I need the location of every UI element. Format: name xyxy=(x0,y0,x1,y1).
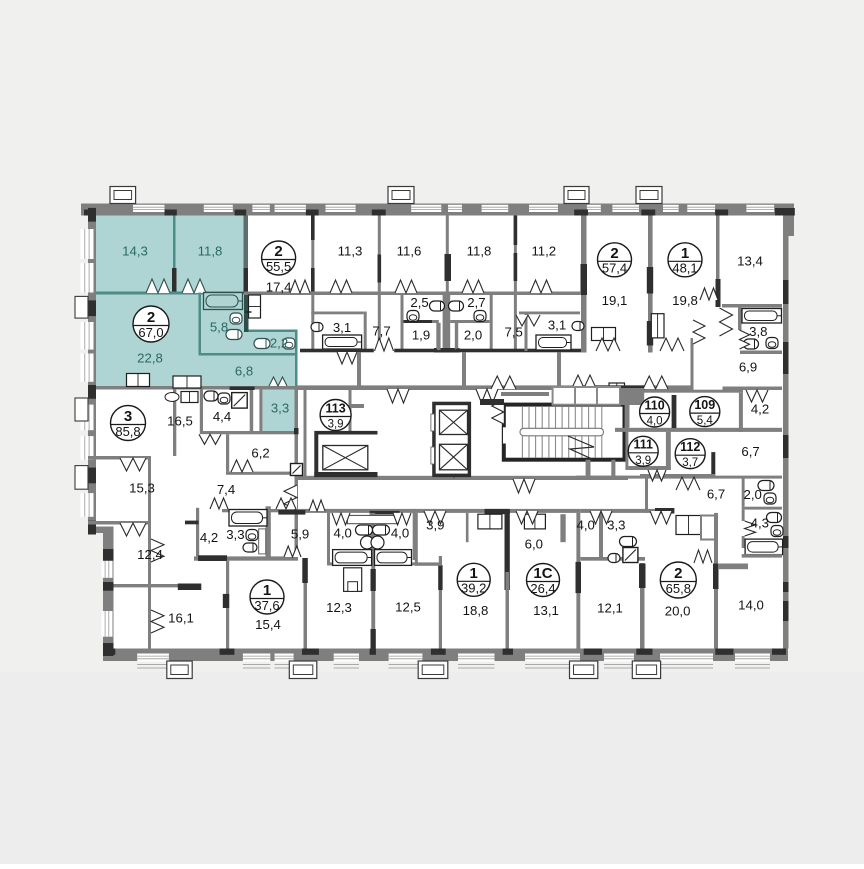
svg-text:11,6: 11,6 xyxy=(397,243,422,258)
svg-text:39,2: 39,2 xyxy=(461,581,486,596)
svg-text:37,6: 37,6 xyxy=(254,598,279,613)
svg-text:3,8: 3,8 xyxy=(749,324,767,339)
svg-text:18,8: 18,8 xyxy=(463,603,489,618)
svg-text:7,7: 7,7 xyxy=(372,324,390,339)
svg-text:3,3: 3,3 xyxy=(607,518,625,533)
svg-text:85,8: 85,8 xyxy=(115,424,140,439)
svg-text:1: 1 xyxy=(681,245,689,262)
svg-text:13,1: 13,1 xyxy=(533,603,559,618)
svg-text:7,5: 7,5 xyxy=(505,324,523,339)
svg-text:2,2: 2,2 xyxy=(270,335,288,350)
svg-text:6,2: 6,2 xyxy=(251,445,269,460)
svg-text:16,5: 16,5 xyxy=(167,413,193,428)
svg-text:48,1: 48,1 xyxy=(672,261,697,276)
svg-text:113: 113 xyxy=(326,401,346,415)
svg-text:109: 109 xyxy=(694,398,715,412)
svg-text:11,8: 11,8 xyxy=(467,243,492,258)
svg-text:57,4: 57,4 xyxy=(602,261,627,276)
svg-text:4,2: 4,2 xyxy=(200,530,218,545)
svg-text:5,8: 5,8 xyxy=(210,319,228,334)
svg-text:3,9: 3,9 xyxy=(635,455,651,467)
svg-text:26,4: 26,4 xyxy=(530,581,555,596)
svg-text:11,2: 11,2 xyxy=(531,243,556,258)
svg-text:4,0: 4,0 xyxy=(647,416,663,428)
svg-text:3,1: 3,1 xyxy=(548,317,566,332)
svg-text:6,9: 6,9 xyxy=(739,359,757,374)
svg-text:65,8: 65,8 xyxy=(666,581,691,596)
svg-text:3,9: 3,9 xyxy=(328,419,344,431)
svg-text:2,5: 2,5 xyxy=(410,295,428,310)
svg-text:67,0: 67,0 xyxy=(138,325,163,340)
svg-text:3,3: 3,3 xyxy=(271,400,289,415)
svg-text:6,7: 6,7 xyxy=(741,444,759,459)
svg-text:110: 110 xyxy=(645,398,665,412)
svg-text:4,3: 4,3 xyxy=(751,515,769,530)
svg-text:2,0: 2,0 xyxy=(464,327,482,342)
svg-text:3,7: 3,7 xyxy=(682,457,698,469)
svg-text:2,7: 2,7 xyxy=(467,295,485,310)
svg-text:4,0: 4,0 xyxy=(334,525,352,540)
svg-text:7,4: 7,4 xyxy=(217,482,235,497)
svg-text:112: 112 xyxy=(680,440,700,454)
svg-text:3,3: 3,3 xyxy=(226,527,244,542)
svg-text:4,0: 4,0 xyxy=(391,525,409,540)
svg-text:6,8: 6,8 xyxy=(235,363,253,378)
svg-text:22,8: 22,8 xyxy=(137,350,163,365)
svg-text:3: 3 xyxy=(124,408,132,425)
svg-text:55,5: 55,5 xyxy=(266,259,291,274)
svg-text:14,0: 14,0 xyxy=(738,597,764,612)
svg-text:6,7: 6,7 xyxy=(707,486,725,501)
svg-text:19,1: 19,1 xyxy=(602,293,628,308)
svg-text:4,4: 4,4 xyxy=(213,409,231,424)
svg-text:2: 2 xyxy=(274,243,282,260)
svg-text:5,4: 5,4 xyxy=(697,415,714,427)
svg-text:11,8: 11,8 xyxy=(198,243,223,258)
svg-text:15,4: 15,4 xyxy=(255,617,281,632)
svg-text:1: 1 xyxy=(263,582,271,599)
svg-text:5,9: 5,9 xyxy=(291,526,309,541)
svg-text:2,0: 2,0 xyxy=(744,487,762,502)
svg-text:3,9: 3,9 xyxy=(426,518,444,533)
svg-text:16,1: 16,1 xyxy=(168,610,194,625)
svg-text:19,8: 19,8 xyxy=(672,293,698,308)
svg-text:11,3: 11,3 xyxy=(338,243,363,258)
svg-text:14,3: 14,3 xyxy=(122,243,148,258)
svg-text:12,5: 12,5 xyxy=(395,599,421,614)
svg-text:2: 2 xyxy=(610,245,618,262)
svg-text:6,0: 6,0 xyxy=(525,536,543,551)
svg-text:4,2: 4,2 xyxy=(751,401,769,416)
svg-text:1: 1 xyxy=(470,565,478,582)
svg-text:15,3: 15,3 xyxy=(129,480,155,495)
svg-text:20,0: 20,0 xyxy=(665,603,691,618)
svg-text:1C: 1C xyxy=(533,565,552,582)
svg-text:4,0: 4,0 xyxy=(577,518,595,533)
svg-text:17,4: 17,4 xyxy=(266,279,292,294)
svg-text:1,9: 1,9 xyxy=(412,327,430,342)
svg-text:2: 2 xyxy=(674,565,682,582)
svg-text:111: 111 xyxy=(633,438,653,452)
svg-text:12,3: 12,3 xyxy=(326,600,352,615)
svg-text:12,1: 12,1 xyxy=(597,600,623,615)
svg-text:12,4: 12,4 xyxy=(137,547,163,562)
svg-text:13,4: 13,4 xyxy=(737,253,763,268)
svg-text:2: 2 xyxy=(147,309,155,326)
svg-text:3,1: 3,1 xyxy=(333,320,351,335)
